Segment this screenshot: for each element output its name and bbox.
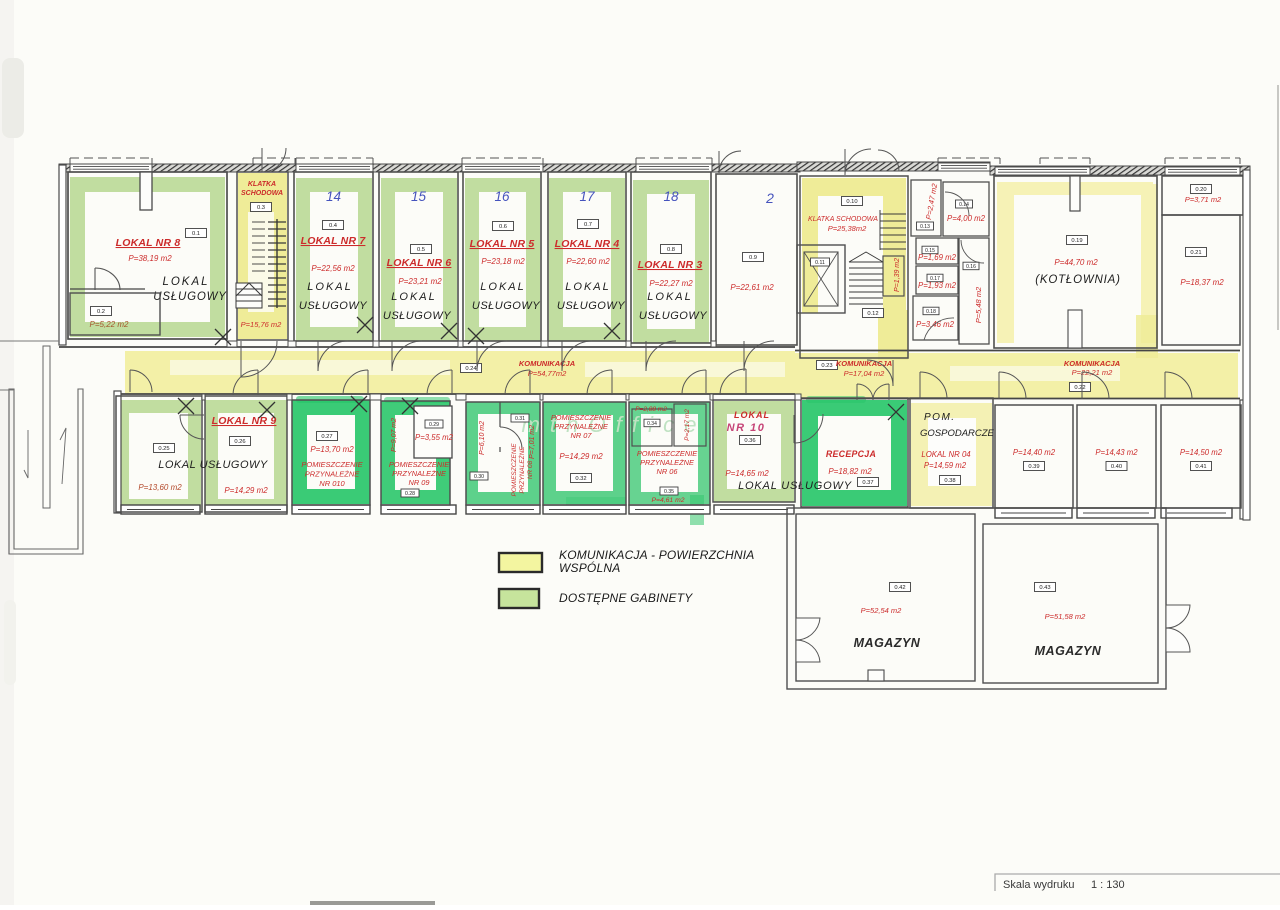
svg-text:0.41: 0.41	[1195, 464, 1206, 470]
svg-text:PRZYNALEŻNE: PRZYNALEŻNE	[305, 470, 361, 479]
svg-text:P=5,48 m2: P=5,48 m2	[974, 286, 983, 323]
svg-text:P=4,61 m2: P=4,61 m2	[651, 497, 684, 504]
svg-text:LOKAL: LOKAL	[565, 281, 610, 293]
svg-text:0.34: 0.34	[647, 421, 657, 427]
svg-text:LOKAL: LOKAL	[734, 410, 770, 420]
svg-text:P=18,37 m2: P=18,37 m2	[1180, 278, 1224, 287]
svg-text:0.32: 0.32	[575, 476, 586, 482]
svg-text:0.22: 0.22	[1074, 385, 1085, 391]
svg-text:0.2: 0.2	[97, 309, 105, 315]
svg-text:P=44,70 m2: P=44,70 m2	[1054, 258, 1098, 267]
svg-text:WSPÓLNA: WSPÓLNA	[559, 560, 620, 575]
svg-text:17: 17	[579, 189, 595, 204]
svg-text:GOSPODARCZE: GOSPODARCZE	[920, 428, 995, 439]
svg-text:KOMUNIKACJA: KOMUNIKACJA	[519, 359, 575, 368]
svg-text:P=3,46 m2: P=3,46 m2	[916, 320, 955, 329]
svg-text:P=22,61 m2: P=22,61 m2	[730, 283, 774, 292]
svg-text:LOKAL: LOKAL	[647, 291, 692, 303]
svg-text:(KOTŁOWNIA): (KOTŁOWNIA)	[1035, 274, 1120, 286]
svg-text:Skala wydruku: Skala wydruku	[1003, 879, 1075, 891]
svg-text:0.40: 0.40	[1111, 464, 1122, 470]
svg-text:LOKAL NR 5: LOKAL NR 5	[470, 238, 535, 250]
svg-text:NR 09: NR 09	[409, 478, 430, 487]
svg-text:P=14,65 m2: P=14,65 m2	[725, 469, 769, 478]
svg-text:P=18,82 m2: P=18,82 m2	[828, 467, 872, 476]
svg-text:0.42: 0.42	[894, 585, 905, 591]
svg-text:0.27: 0.27	[321, 434, 332, 440]
svg-text:16: 16	[494, 189, 510, 204]
svg-text:LOKAL NR 4: LOKAL NR 4	[555, 238, 620, 250]
svg-text:LOKAL NR 6: LOKAL NR 6	[387, 257, 452, 269]
svg-text:P=5,22 m2: P=5,22 m2	[90, 320, 129, 329]
svg-text:NR 08: NR 08	[527, 460, 534, 479]
svg-text:KOMUNIKACJA - POWIERZCHNIA: KOMUNIKACJA - POWIERZCHNIA	[559, 548, 754, 562]
svg-text:P=22,60 m2: P=22,60 m2	[566, 257, 610, 266]
svg-text:KLATKA: KLATKA	[248, 181, 276, 188]
svg-text:MAGAZYN: MAGAZYN	[854, 636, 921, 650]
svg-text:P=38,19 m2: P=38,19 m2	[128, 254, 172, 263]
svg-text:POMIESZCZENIE: POMIESZCZENIE	[551, 413, 611, 422]
svg-text:P=3,71 m2: P=3,71 m2	[1185, 195, 1222, 204]
svg-text:P=7,01 m2: P=7,01 m2	[529, 425, 536, 459]
svg-text:P=52,54 m2: P=52,54 m2	[861, 606, 902, 615]
svg-text:LOKAL NR 7: LOKAL NR 7	[301, 235, 367, 247]
svg-text:P=17,04 m2: P=17,04 m2	[844, 369, 885, 378]
svg-text:0.8: 0.8	[667, 247, 675, 253]
svg-text:USŁUGOWY: USŁUGOWY	[472, 300, 540, 312]
svg-text:P=14,50 m2: P=14,50 m2	[1180, 448, 1223, 457]
svg-text:POMIESZCZENIE: POMIESZCZENIE	[389, 460, 449, 469]
svg-text:P=2,88 m2: P=2,88 m2	[635, 406, 667, 413]
svg-text:0.10: 0.10	[846, 199, 857, 205]
svg-text:KLATKA SCHODOWA: KLATKA SCHODOWA	[808, 216, 878, 223]
svg-text:P=14,29 m2: P=14,29 m2	[559, 452, 603, 461]
svg-text:POMIESZCZENIE: POMIESZCZENIE	[511, 443, 518, 497]
svg-text:P=23,21 m2: P=23,21 m2	[398, 277, 442, 286]
svg-text:LOKAL NR 9: LOKAL NR 9	[212, 415, 277, 427]
svg-text:NR 10: NR 10	[727, 422, 766, 434]
svg-text:P=14,29 m2: P=14,29 m2	[224, 486, 268, 495]
svg-text:0.6: 0.6	[499, 224, 507, 230]
svg-text:MAGAZYN: MAGAZYN	[1035, 644, 1102, 658]
svg-text:2: 2	[765, 190, 774, 206]
svg-text:NR 06: NR 06	[657, 467, 679, 476]
svg-text:POM.: POM.	[924, 412, 956, 423]
svg-text:0.13: 0.13	[920, 224, 930, 230]
svg-text:NR 010: NR 010	[319, 479, 345, 488]
svg-text:0.1: 0.1	[192, 231, 200, 237]
svg-text:0.21: 0.21	[1190, 250, 1201, 256]
svg-text:0.9: 0.9	[749, 255, 757, 261]
svg-text:USŁUGOWY: USŁUGOWY	[383, 310, 451, 322]
svg-text:LOKAL USŁUGOWY: LOKAL USŁUGOWY	[158, 459, 268, 471]
svg-text:PRZYNALEŻNE: PRZYNALEŻNE	[518, 446, 526, 494]
svg-text:LOKAL NR 8: LOKAL NR 8	[116, 237, 181, 249]
svg-text:0.39: 0.39	[1028, 464, 1039, 470]
svg-text:0.18: 0.18	[926, 309, 936, 315]
svg-text:P=14,40 m2: P=14,40 m2	[1013, 448, 1056, 457]
svg-text:P=15,76 m2: P=15,76 m2	[241, 320, 282, 329]
svg-text:LOKAL: LOKAL	[480, 281, 525, 293]
svg-text:0.20: 0.20	[1195, 187, 1206, 193]
svg-text:P=13,60 m2: P=13,60 m2	[138, 483, 182, 492]
svg-text:P=4,00 m2: P=4,00 m2	[947, 214, 986, 223]
svg-text:14: 14	[326, 189, 341, 204]
svg-text:USŁUGOWY: USŁUGOWY	[299, 300, 367, 312]
svg-text:P=9,07 m2: P=9,07 m2	[391, 418, 398, 452]
svg-text:P=3,55 m2: P=3,55 m2	[415, 433, 454, 442]
svg-text:0.4: 0.4	[329, 223, 338, 229]
svg-text:P=22,56 m2: P=22,56 m2	[311, 264, 355, 273]
svg-text:USŁUGOWY: USŁUGOWY	[153, 291, 227, 303]
svg-text:USŁUGOWY: USŁUGOWY	[639, 310, 707, 322]
svg-text:P=6,10 m2: P=6,10 m2	[479, 421, 486, 455]
svg-text:SCHODOWA: SCHODOWA	[241, 190, 283, 197]
svg-text:0.30: 0.30	[474, 474, 484, 480]
svg-text:1 : 130: 1 : 130	[1091, 879, 1125, 891]
svg-text:P=51,58 m2: P=51,58 m2	[1045, 612, 1086, 621]
svg-text:0.23: 0.23	[821, 363, 832, 369]
svg-text:0.5: 0.5	[417, 247, 425, 253]
svg-text:P=23,18 m2: P=23,18 m2	[481, 257, 525, 266]
svg-text:USŁUGOWY: USŁUGOWY	[557, 300, 625, 312]
svg-text:0.26: 0.26	[234, 439, 245, 445]
svg-text:0.12: 0.12	[867, 311, 878, 317]
svg-text:0.31: 0.31	[515, 416, 525, 422]
svg-text:NR 07: NR 07	[571, 431, 593, 440]
svg-text:P=22,27 m2: P=22,27 m2	[649, 279, 693, 288]
svg-text:PRZYNALEŻNE: PRZYNALEŻNE	[554, 422, 608, 431]
svg-text:PRZYNALEŻNE: PRZYNALEŻNE	[392, 469, 446, 478]
svg-text:0.28: 0.28	[405, 491, 415, 497]
svg-text:0.25: 0.25	[158, 446, 169, 452]
svg-text:0.19: 0.19	[1071, 238, 1082, 244]
svg-text:15: 15	[411, 189, 427, 204]
svg-text:LOKAL: LOKAL	[162, 276, 209, 288]
svg-text:0.24: 0.24	[465, 366, 477, 372]
svg-text:P=14,59 m2: P=14,59 m2	[924, 461, 967, 470]
svg-text:DOSTĘPNE GABINETY: DOSTĘPNE GABINETY	[559, 591, 693, 605]
svg-text:P=22,21 m2: P=22,21 m2	[1072, 368, 1113, 377]
svg-text:0.16: 0.16	[966, 264, 976, 270]
svg-text:LOKAL USŁUGOWY: LOKAL USŁUGOWY	[738, 480, 852, 492]
svg-text:0.7: 0.7	[584, 222, 592, 228]
svg-text:P=1,69 m2: P=1,69 m2	[918, 253, 957, 262]
svg-text:0.35: 0.35	[664, 489, 674, 495]
svg-text:LOKAL: LOKAL	[391, 291, 436, 303]
svg-text:POMIESZCZENIE: POMIESZCZENIE	[637, 449, 697, 458]
svg-text:RECEPCJA: RECEPCJA	[826, 449, 876, 459]
svg-text:P=2,17 m2: P=2,17 m2	[684, 409, 691, 441]
svg-text:18: 18	[663, 189, 679, 204]
svg-text:P=14,43 m2: P=14,43 m2	[1095, 448, 1138, 457]
svg-text:POMIESZCZENIE: POMIESZCZENIE	[301, 460, 363, 469]
svg-text:0.43: 0.43	[1039, 585, 1050, 591]
svg-text:0.37: 0.37	[862, 480, 873, 486]
svg-text:P=13,70 m2: P=13,70 m2	[310, 445, 354, 454]
svg-text:P=25,38m2: P=25,38m2	[828, 224, 867, 233]
svg-text:LOKAL: LOKAL	[307, 281, 352, 293]
svg-text:0.38: 0.38	[944, 478, 955, 484]
svg-text:P=54,77m2: P=54,77m2	[528, 369, 567, 378]
svg-text:P=1,93 m2: P=1,93 m2	[918, 281, 957, 290]
svg-text:LOKAL NR 3: LOKAL NR 3	[638, 259, 703, 271]
svg-text:LOKAL NR 04: LOKAL NR 04	[921, 450, 971, 459]
svg-text:P=1,39 m2: P=1,39 m2	[894, 258, 901, 292]
svg-text:0.29: 0.29	[429, 422, 439, 428]
svg-text:PRZYNALEŻNE: PRZYNALEŻNE	[640, 458, 694, 467]
svg-text:0.3: 0.3	[257, 205, 265, 211]
svg-text:KOMUNIKACJA: KOMUNIKACJA	[1064, 359, 1120, 368]
svg-text:0.36: 0.36	[744, 438, 755, 444]
svg-text:0.11: 0.11	[815, 260, 825, 266]
